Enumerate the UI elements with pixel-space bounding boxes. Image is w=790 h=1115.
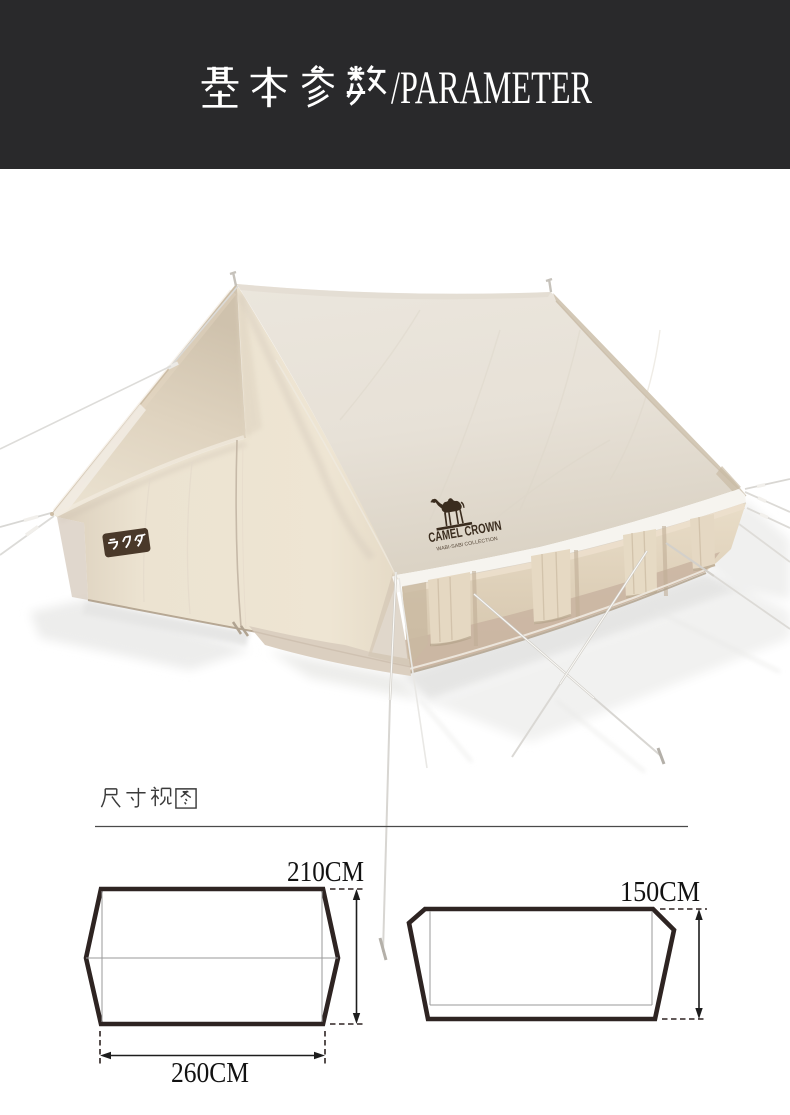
svg-text:/PARAMETER: /PARAMETER: [391, 62, 592, 114]
svg-text:150CM: 150CM: [620, 877, 700, 908]
svg-text:210CM: 210CM: [287, 857, 364, 888]
svg-text:260CM: 260CM: [171, 1058, 249, 1089]
